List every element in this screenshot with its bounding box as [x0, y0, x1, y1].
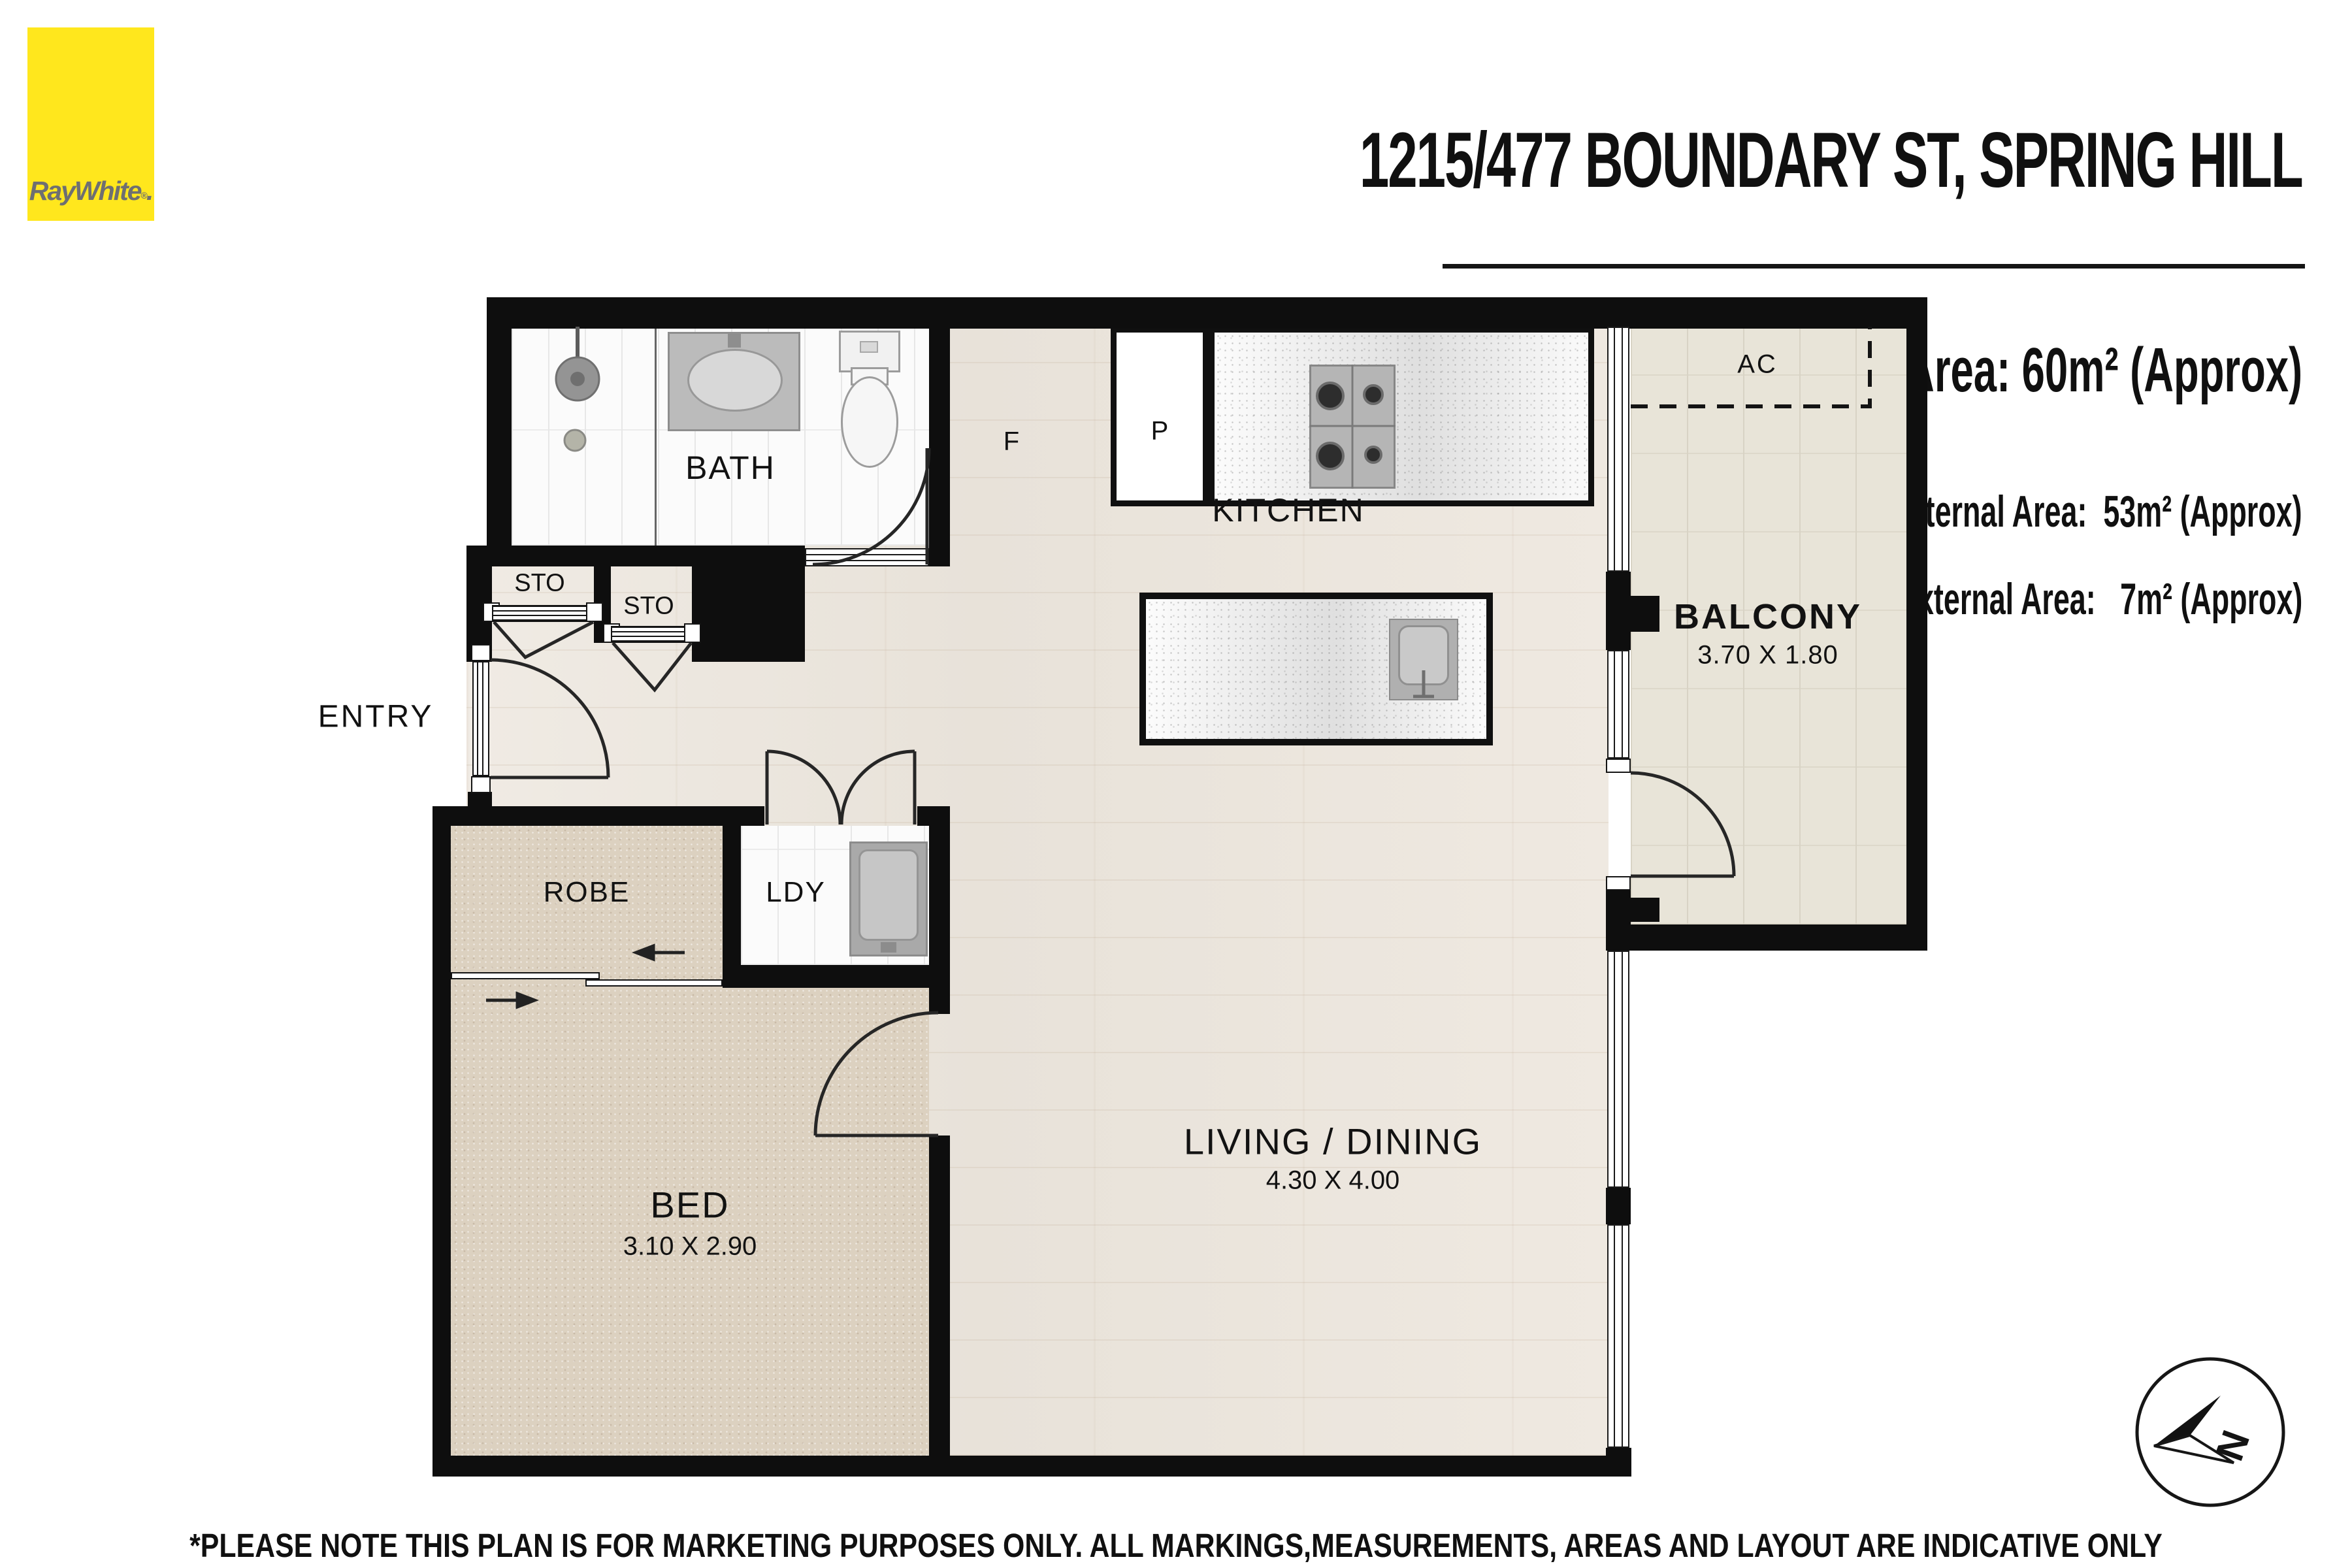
wall-north [487, 297, 1927, 329]
window-living-east-3 [1607, 951, 1629, 1188]
wall-ldy-south [741, 965, 950, 988]
wall-east-pier-a-stub [1631, 596, 1659, 632]
wall-bed-east-lower [929, 1135, 950, 1456]
wall-east-pier-c [1606, 1188, 1631, 1224]
shower-screen [655, 327, 657, 546]
kitchen-sink-basin [1398, 625, 1449, 685]
compass-north-label: N [2207, 1425, 2258, 1467]
label-fridge-space: F [1004, 427, 1019, 457]
room-label-ldy: LDY [766, 876, 826, 909]
cooktop [1309, 365, 1396, 489]
page-title: 1215/477 BOUNDARY ST, SPRING HILL [1360, 115, 2302, 205]
room-label-robe: ROBE [544, 876, 630, 909]
room-label-bed: BED [650, 1184, 729, 1226]
toilet-button [860, 341, 878, 353]
wall-balcony-south [1609, 924, 1927, 951]
bath-door-threshold [805, 548, 929, 566]
wall-east-pier-a [1606, 572, 1631, 650]
vanity-basin [687, 349, 783, 412]
compass-needle-dark [2154, 1396, 2221, 1446]
wall-east-pier-b [1606, 890, 1631, 951]
room-dims-bed: 3.10 X 2.90 [623, 1232, 757, 1262]
title-underline [1443, 264, 2305, 269]
wall-south [433, 1456, 1631, 1477]
kitchen-bench [1209, 327, 1594, 506]
floorplan-page: RayWhite®. 1215/477 BOUNDARY ST, SPRING … [0, 0, 2352, 1568]
wall-east-south-corner [1606, 1448, 1631, 1477]
robe-slider-panel-1 [451, 972, 600, 979]
exterior-gap [466, 327, 487, 546]
wall-bath-west [487, 297, 512, 546]
sto-left-jamb-2 [586, 602, 603, 622]
window-living-east-4 [1607, 1224, 1629, 1448]
room-label-bath: BATH [685, 449, 776, 487]
label-ac-unit: AC [1737, 350, 1778, 380]
room-label-entry: ENTRY [318, 699, 434, 735]
internal-area-text: Internal Area: 53m² (Approx) [1899, 486, 2302, 537]
registered-mark: ® [141, 190, 146, 201]
washer-tap [881, 942, 896, 953]
wall-bed-west [433, 806, 451, 1477]
wall-robe-north [433, 806, 764, 826]
wall-sto-east-mass [692, 546, 805, 662]
room-label-sto-right: STO [623, 593, 674, 621]
wall-bath-east [929, 297, 950, 566]
disclaimer-text: *PLEASE NOTE THIS PLAN IS FOR MARKETING … [188, 1526, 2164, 1568]
room-label-sto-left: STO [514, 570, 564, 598]
balcony-door-jamb-bottom [1606, 876, 1631, 890]
room-dims-living: 4.30 X 4.00 [1266, 1166, 1400, 1196]
room-label-balcony: BALCONY [1674, 596, 1862, 637]
room-label-living: LIVING / DINING [1184, 1120, 1482, 1163]
compass: N [2137, 1359, 2283, 1505]
raywhite-logo: RayWhite®. [27, 27, 154, 221]
robe-slider-panel-2 [585, 979, 723, 987]
wall-robe-ldy-divider [723, 826, 741, 988]
toilet-bowl [841, 376, 898, 468]
external-area-text: External Area: 7m² (Approx) [1898, 574, 2302, 625]
compass-needle-light [2154, 1435, 2234, 1463]
raywhite-logo-text: RayWhite®. [27, 176, 154, 206]
entry-door-panel [472, 661, 489, 776]
washer-drum [858, 849, 919, 941]
window-living-east-2 [1607, 650, 1629, 759]
room-dims-balcony: 3.70 X 1.80 [1697, 641, 1838, 670]
room-label-kitchen: KITCHEN [1212, 491, 1364, 529]
balcony-door-jamb-top [1606, 759, 1631, 773]
wall-balcony-east [1906, 297, 1927, 951]
wall-east-pier-b-stub [1631, 898, 1659, 922]
vanity-tap [728, 332, 741, 348]
label-pantry: P [1151, 417, 1169, 446]
entry-door-jamb-top [471, 644, 491, 661]
window-living-east-1 [1607, 327, 1629, 572]
sto-right-door-track [611, 626, 692, 643]
entry-door-jamb-bottom [471, 776, 491, 793]
sto-left-door-track [492, 605, 594, 622]
sto-right-jamb-2 [684, 623, 701, 643]
